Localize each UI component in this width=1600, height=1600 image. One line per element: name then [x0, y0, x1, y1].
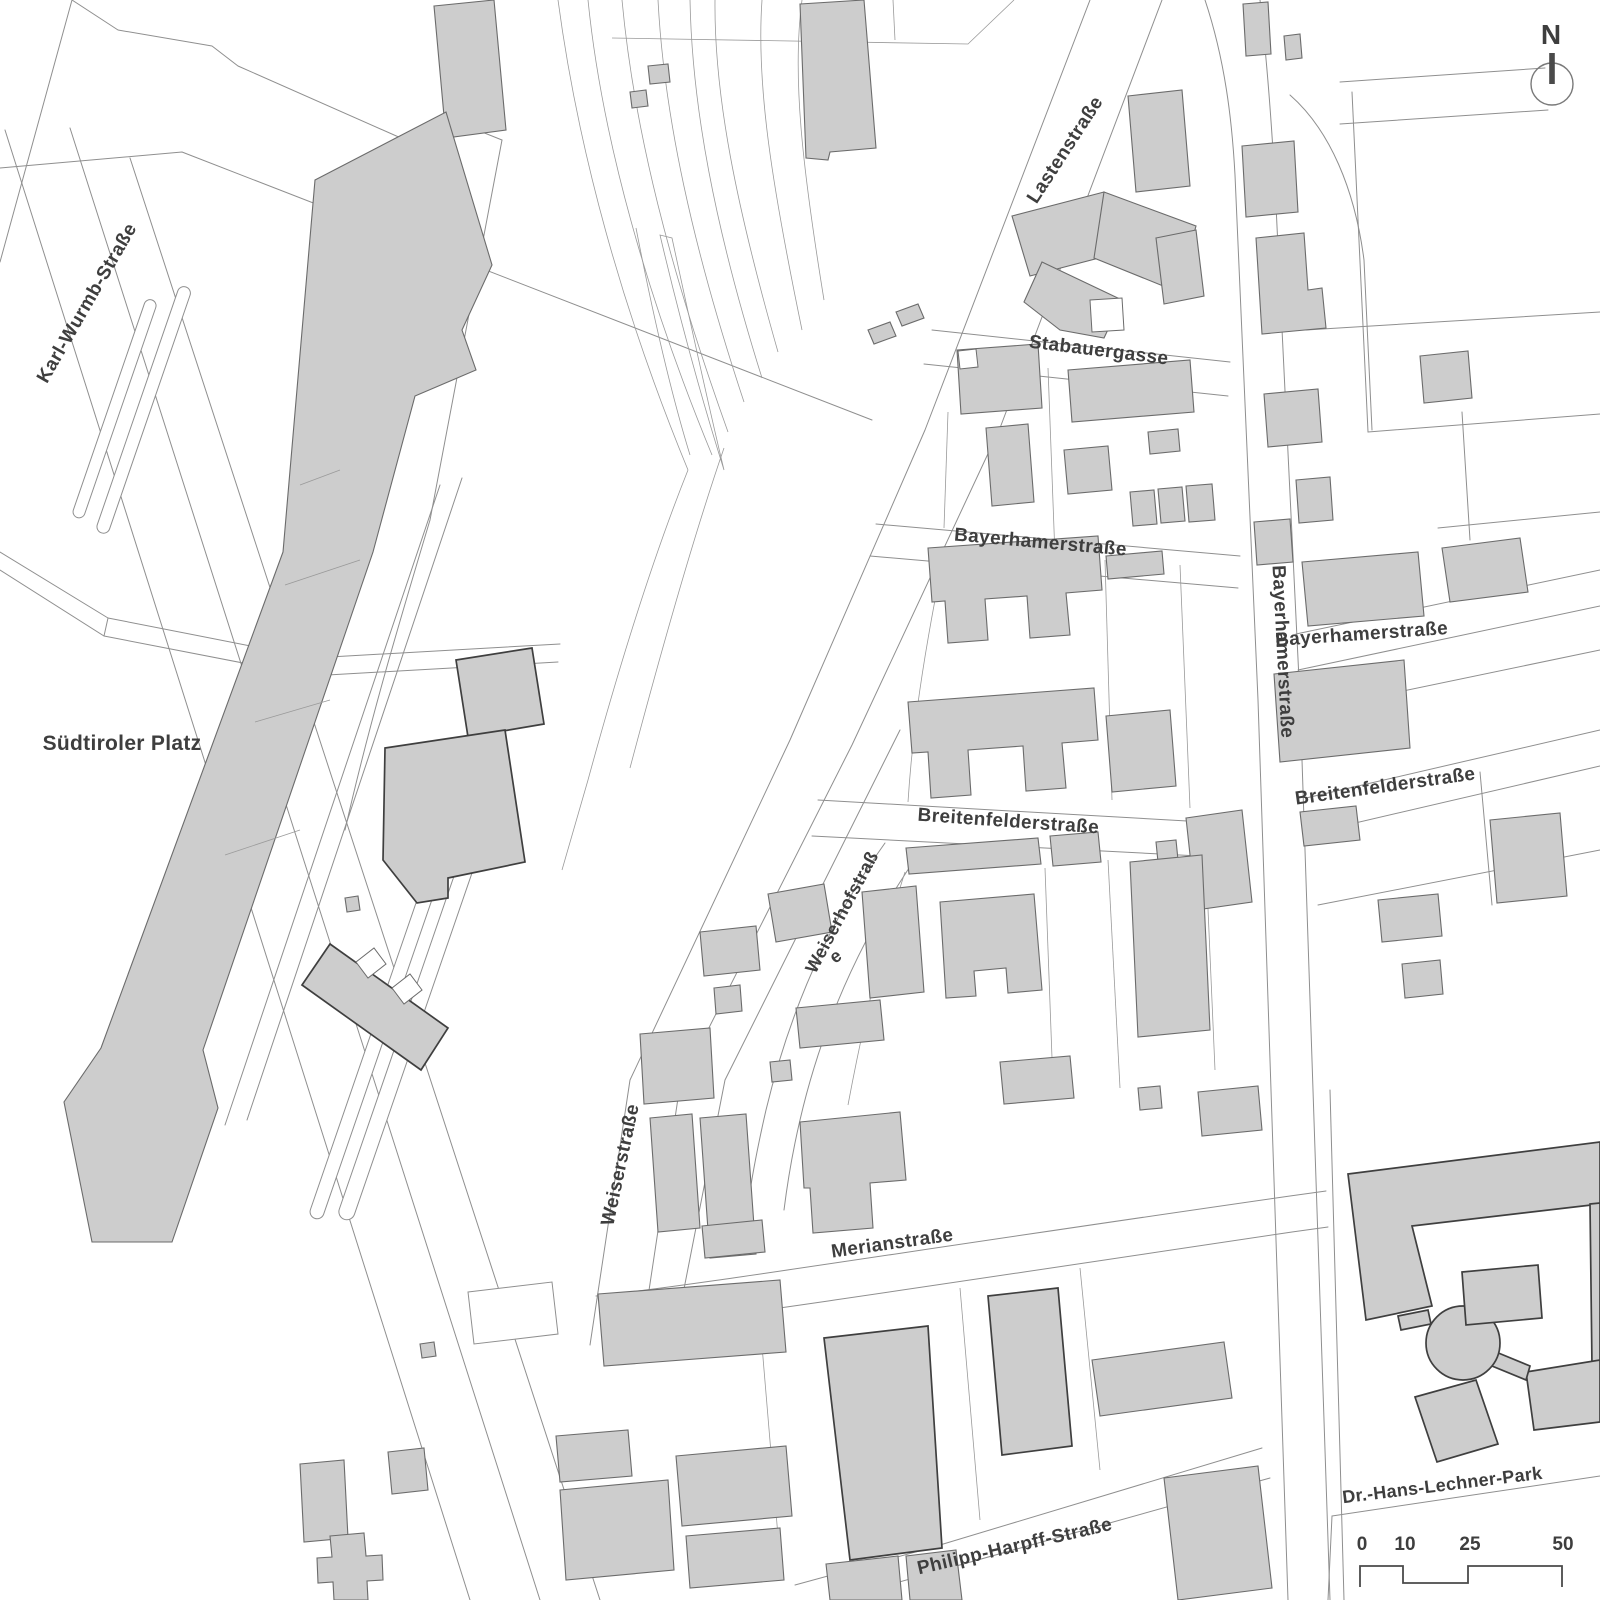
building: [1158, 487, 1185, 523]
building: [388, 1448, 428, 1494]
building: [800, 1112, 906, 1233]
building: [1186, 484, 1215, 522]
map-canvas: Karl-Wurmb-Straße Südtiroler Platz Laste…: [0, 0, 1600, 1600]
building: [317, 1533, 383, 1600]
building: [1064, 446, 1112, 494]
building: [1106, 710, 1176, 792]
building: [906, 838, 1041, 874]
building: [420, 1342, 436, 1358]
street-label-bayerhamerstrasse-east: Bayerhamerstraße: [1274, 618, 1448, 651]
building: [1243, 2, 1271, 56]
building: [1462, 1265, 1542, 1325]
building: [770, 1060, 792, 1082]
building: [1302, 552, 1424, 626]
street-label-philipp-harpff-strasse: Philipp-Harpff-Straße: [915, 1514, 1114, 1579]
scale-bar-shape: [1360, 1566, 1562, 1587]
building: [908, 688, 1098, 798]
building: [676, 1446, 792, 1526]
building: [640, 1028, 714, 1104]
building: [824, 1326, 942, 1560]
building: [598, 1280, 786, 1366]
building: [1138, 1086, 1162, 1110]
building: [1300, 806, 1360, 846]
scale-tick-25: 25: [1459, 1534, 1481, 1555]
building: [1068, 360, 1194, 422]
building: [1264, 389, 1322, 447]
building: [896, 304, 924, 326]
north-label: N: [1541, 19, 1561, 50]
building: [1254, 519, 1293, 565]
building: [1378, 894, 1442, 942]
building: [868, 322, 896, 344]
street-label-breitenfelderstrasse-center: Breitenfelderstraße: [917, 805, 1100, 839]
place-label-suedtiroler-platz: Südtiroler Platz: [43, 732, 202, 755]
street-label-breitenfelderstrasse-east: Breitenfelderstraße: [1294, 764, 1477, 810]
building: [862, 886, 924, 998]
scale-tick-10: 10: [1394, 1534, 1415, 1555]
building: [560, 1480, 674, 1580]
building: [1000, 1056, 1074, 1104]
building: [714, 985, 742, 1014]
building: [702, 1220, 765, 1258]
building: [1402, 960, 1443, 998]
building: [1242, 141, 1298, 217]
building: [345, 896, 360, 912]
building: [1164, 1466, 1272, 1600]
building: [1442, 538, 1528, 602]
building: [650, 1114, 700, 1232]
building: [796, 1000, 884, 1048]
building: [1130, 490, 1157, 526]
park-building-complex: [1348, 1142, 1600, 1462]
street-label-bayerhamerstrasse-main: Bayerhamerstraße: [1267, 565, 1297, 739]
building: [940, 894, 1042, 998]
building: [700, 926, 760, 976]
building: [1590, 1203, 1600, 1367]
building: [1130, 855, 1210, 1037]
building: [383, 730, 525, 903]
building: [556, 1430, 632, 1482]
building: [1156, 230, 1204, 304]
park-label-dr-hans-lechner-park: Dr.-Hans-Lechner-Park: [1341, 1463, 1544, 1507]
building: [1284, 34, 1302, 60]
building: [986, 424, 1034, 506]
building: [1128, 90, 1190, 192]
street-label-lastenstrasse: Lastenstraße: [1023, 93, 1108, 208]
building: [1420, 351, 1472, 403]
building: [1148, 429, 1180, 454]
scale-tick-0: 0: [1357, 1534, 1368, 1555]
building: [686, 1528, 784, 1588]
scale-tick-50: 50: [1552, 1534, 1573, 1555]
building: [648, 64, 670, 84]
building: [456, 648, 544, 737]
building: [1256, 233, 1326, 334]
building-outline: [468, 1282, 558, 1344]
building: [630, 90, 648, 108]
compass-needle-icon: [1549, 53, 1555, 84]
scale-bar: 0 10 25 50: [1357, 1534, 1574, 1587]
building: [1198, 1086, 1262, 1136]
north-compass: N: [1531, 19, 1573, 105]
building: [826, 1556, 902, 1600]
building: [1526, 1360, 1600, 1430]
city-site-plan: Karl-Wurmb-Straße Südtiroler Platz Laste…: [0, 0, 1600, 1600]
street-label-weiserhofstrasse-e: e: [826, 945, 846, 967]
building: [800, 0, 876, 160]
building: [1092, 1342, 1232, 1416]
building: [300, 1460, 348, 1542]
building: [1296, 477, 1333, 523]
building: [1490, 813, 1567, 903]
building: [988, 1288, 1072, 1455]
building: [1415, 1380, 1498, 1462]
street-label-weiserstrasse: Weiserstraße: [597, 1102, 643, 1227]
